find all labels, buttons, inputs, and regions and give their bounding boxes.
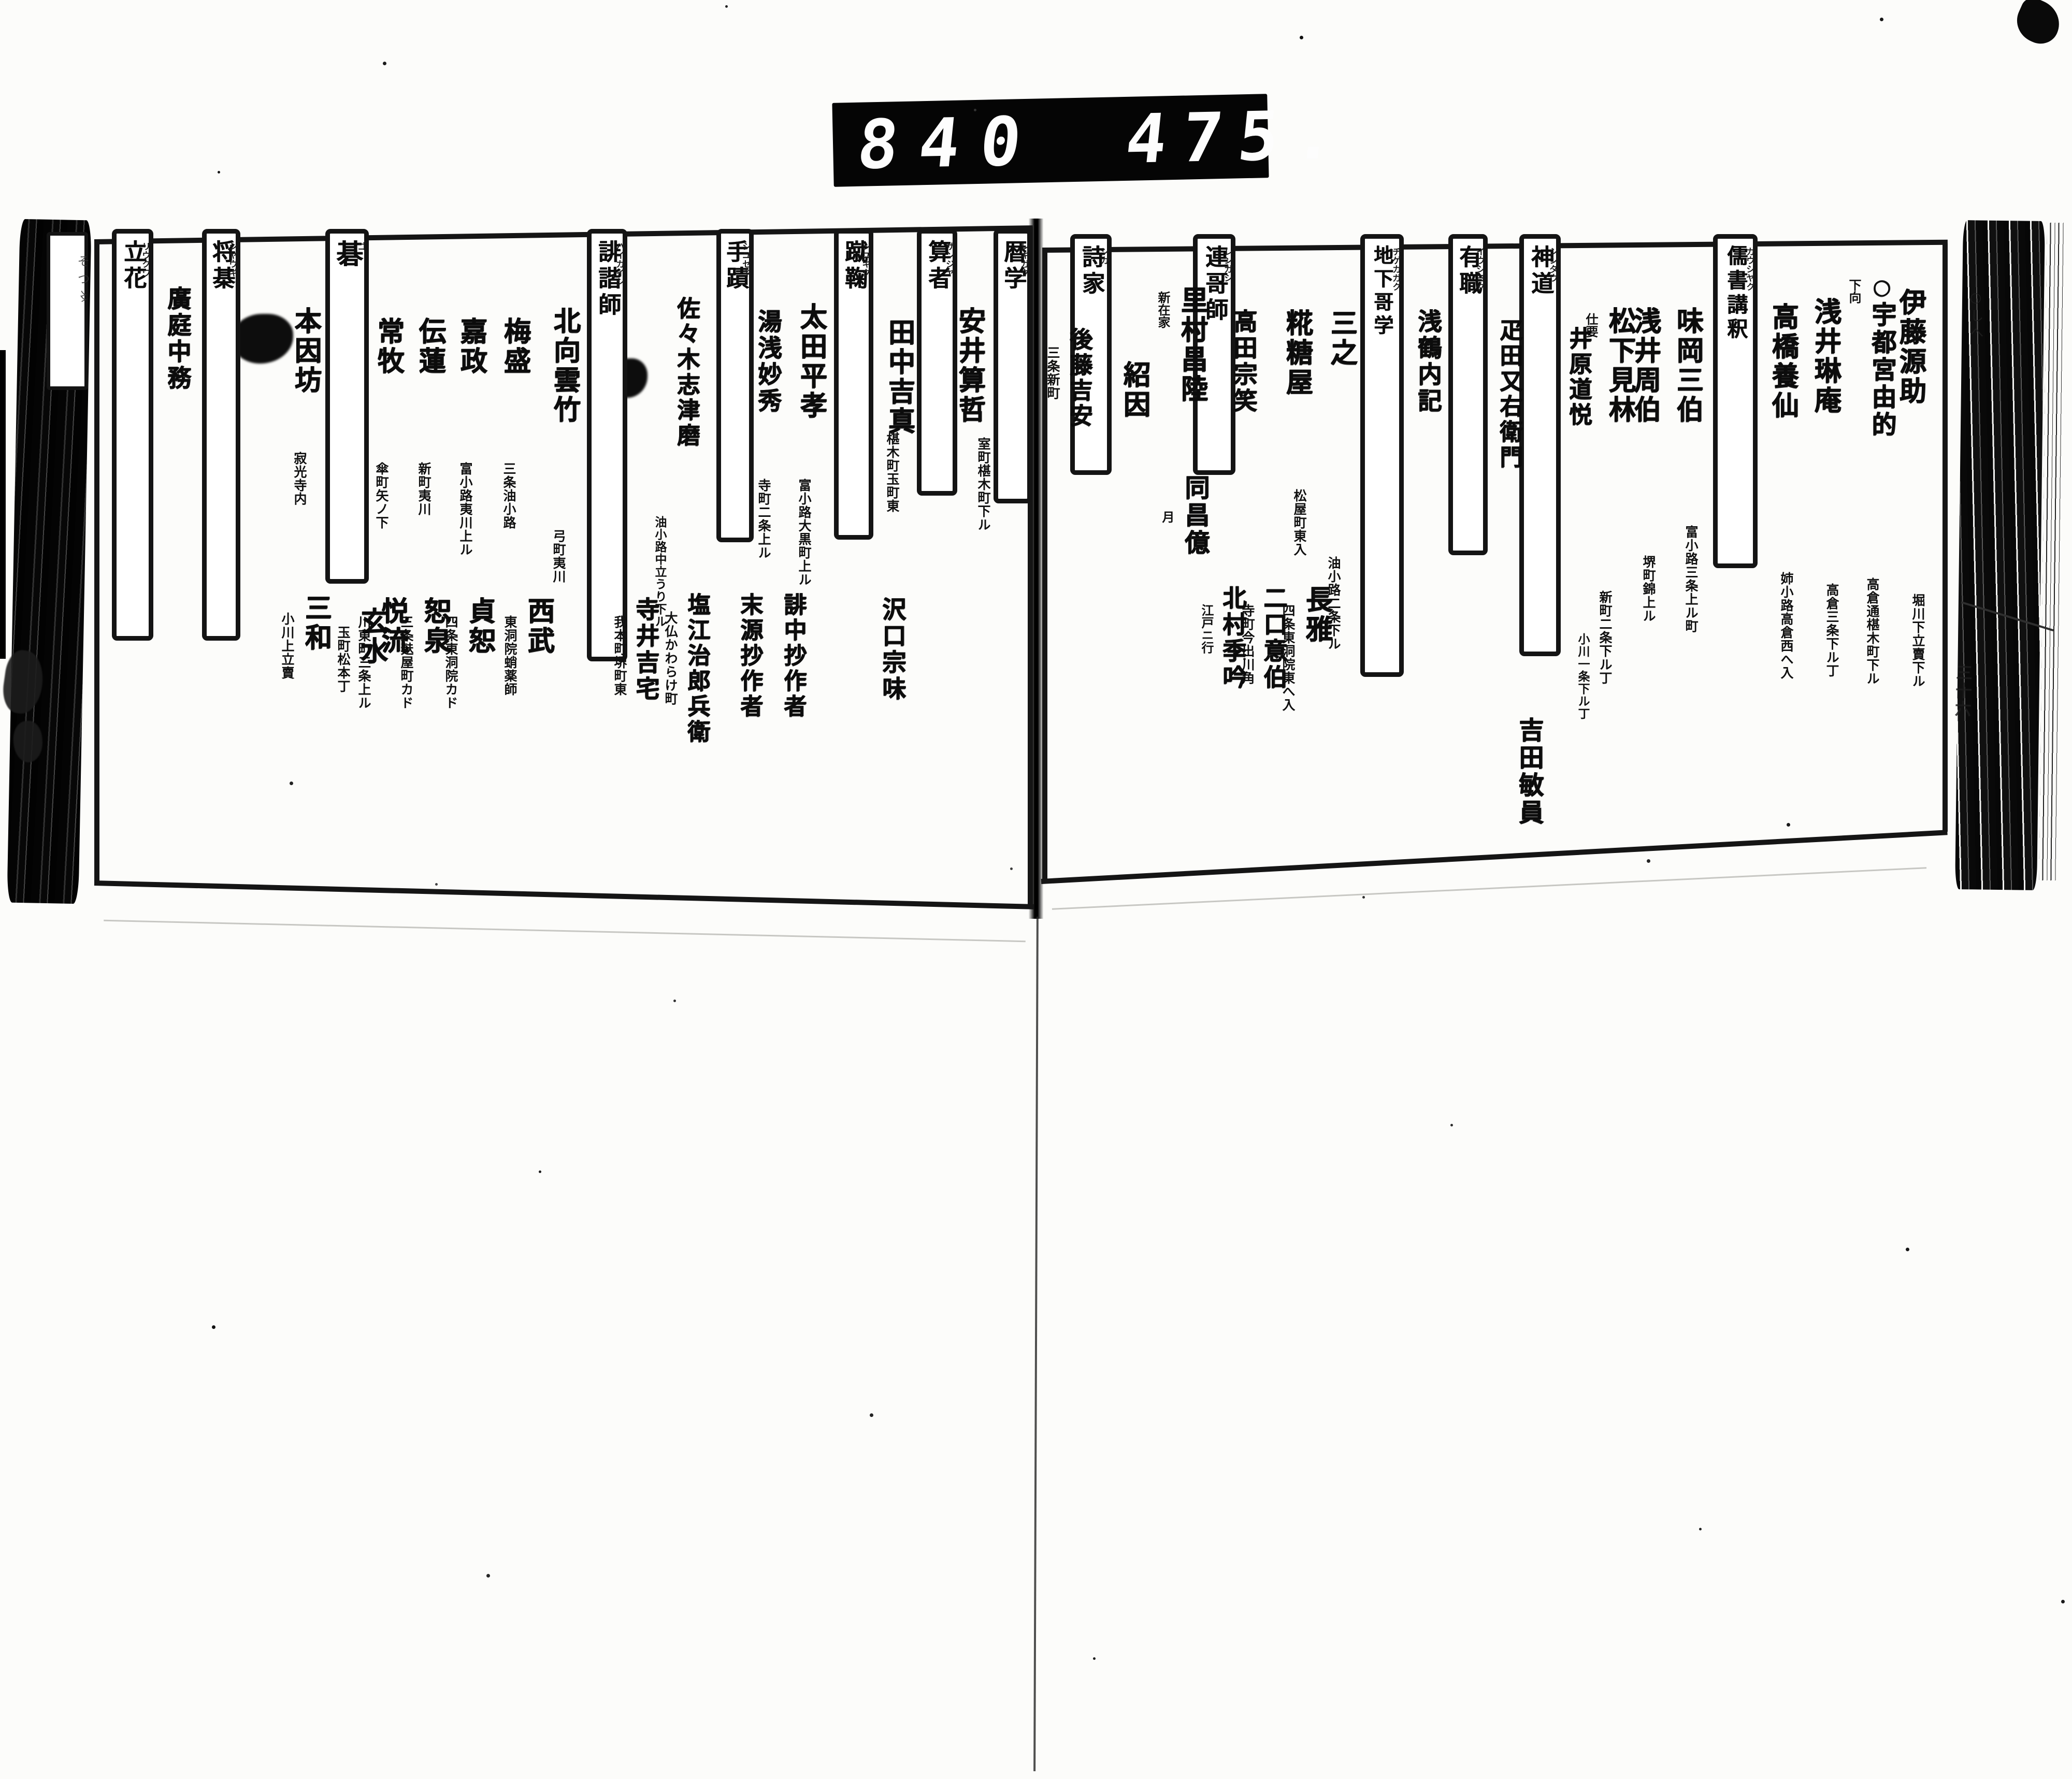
entry-bottom: 塩江治郎兵衛 大仏かわらけ町 [661,592,713,745]
entry-address: 高倉三条下ル丁 [1822,583,1841,677]
entry-name: 高橋養仙 [1763,302,1802,421]
tab-shogi: 将棊 シヤウギ [202,229,240,641]
left-margin-scribble: そつ〻 [74,255,92,308]
entry-name: 安井算哲 [950,307,989,425]
entry-bottom: 三和 小川上立賣 [278,594,335,679]
entry-name: 浅鶴内記 [1411,309,1445,414]
tab-furigana: レンガシ [1222,247,1231,282]
entry-name: 紹因 [1115,360,1154,420]
entry-bottom: 北村季吟 江戸ニ行 [1198,585,1250,691]
counter-left-digits: 840 [854,102,1045,184]
entry-name: 太田平孝 [792,302,830,421]
entry-name: 浅井琳庵 [1806,297,1845,415]
entry-address: 弓町夷川 [549,529,568,583]
tab-furigana: シユセキ [741,242,750,277]
tab-yusoku: 有職 イウシヨク [1448,234,1488,555]
left-frame-bottom [94,880,1034,909]
entry-name: ○宇都宮由的 下向 [1845,274,1900,439]
entry-address: 富小路三条上ル町 [1681,525,1700,633]
entry-name: 佐々木志津磨 [669,296,702,449]
entry-address: 姉小路高倉西へ入 [1777,572,1795,679]
entry-address: 新町夷川 [414,462,433,516]
entry-bottom: 同昌億 月 [1158,474,1213,557]
entry-note: 月 [1158,511,1176,557]
counter-right-digits: 475. [1122,95,1354,179]
tab-furigana: イウシヨク [1475,247,1484,291]
tab-shuseki: 手蹟 シユセキ [716,229,754,542]
entry-bottom: 西武 東洞院蛸薬師 [500,597,558,696]
tab-jusho-koshaku: 儒書講釈 カウシヤク [1713,234,1758,568]
tab-furigana: ゴ [356,242,365,251]
entry-name-bottom: 誹中抄作者 [776,592,809,719]
entry-name-bottom: 沢口宗味 [875,597,910,702]
entry-name: 湯浅妙秀 [751,309,785,414]
tab-furigana: リウクワ [140,242,149,277]
tab-furigana: カウシヤク [1745,247,1753,291]
entry-name: 後藤吉安 三条新町 [1043,327,1095,429]
tab-furigana: サンジヤ [944,242,953,277]
entry-name: 梅盛 [495,317,534,376]
entry-name: 糀糖屋 [1277,309,1316,397]
entry-address: 玉町松本丁 [334,626,352,693]
entry-name: 里村昌陸 新在家 [1154,286,1211,404]
entry-name: 井原道悦 [1561,326,1594,428]
entry-address: 三条新町 [1043,346,1062,429]
entry-address: 東洞院蛸薬師 [500,615,519,696]
right-frame-top [1042,240,1948,253]
tab-shinto: 神道 シンタウ [1519,234,1561,656]
tab-furigana: レキガク [1019,242,1028,277]
entry-address: 室町椹木町下ル [974,437,992,531]
entry-name: 高田宗笑 [1227,309,1261,414]
entry-note: 下向 [1845,279,1863,439]
entry-bottom: 玄水 玉町松本丁 [334,607,391,693]
tab-rikka: 立花 リウクワ [112,229,153,641]
entry-note: 新在家 [1154,291,1172,404]
tab-furigana: ハイカイシ [614,242,623,286]
entry-address: 寺町二条上ル [754,479,773,559]
entry-address: 高倉通椹木町下ル [1863,577,1881,685]
entry-name: 廣庭中務 [161,286,195,392]
tab-kemari: 蹴鞠 シユキク [834,229,873,540]
entry-address: 傘町矢ノ下 [372,462,391,529]
right-frame-right [1942,243,1948,832]
tab-furigana: シユキク [860,242,869,277]
entry-address: 富小路夷川上ル [456,462,474,556]
entry-address: 椹木町玉町東 [883,432,901,513]
entry-address: 三条油小路 [499,462,518,529]
entry-address: 堺町錦上ル [1639,555,1658,623]
entry-name: 三之 [1322,309,1361,368]
film-edge-bar [0,350,6,659]
entry-name: 疋田又右衛門 [1492,318,1525,470]
entry-name: 嘉政 [452,317,491,376]
entry-address: 小川一条下ル丁 [1574,633,1591,720]
scan-corner-artifact [2010,0,2066,50]
tab-furigana: ヂゲカガク [1391,247,1400,291]
entry-note: 江戸ニ行 [1198,604,1216,691]
entry-name: 本因坊 [286,307,325,395]
entry-name-bottom: 吉田敏員 [1510,717,1547,827]
entry-address: 寂光寺内 [290,452,309,505]
entry-name: 田中吉真 [880,318,918,436]
tab-furigana: シンタウ [1548,247,1557,282]
film-frame-counter: 840 475. [832,94,1269,187]
entry-address: 松屋町東入 [1290,489,1308,556]
entry-address: 堀川下立賣下ル [1908,594,1927,688]
entry-address: 我本町堺町東 [610,615,629,702]
tab-furigana: シカ [1099,247,1107,265]
scan-speckles [218,171,220,173]
entry-address: 大仏かわらけ町 [661,611,680,745]
entry-address: 新町二条下ル丁 [1595,590,1614,685]
tab-jige-kagaku: 地下哥学 ヂゲカガク [1360,234,1404,677]
entry-name: 北向雲竹 [545,307,584,425]
entry-circle-mark: ○ [1869,274,1894,301]
entry-name: 味岡三伯 [1668,307,1707,425]
left-frame-left [94,239,99,885]
scanned-microfilm-frame: { "counter": { "left_digits": "840", "ri… [0,0,2072,1779]
ink-smudge-left-page [232,314,293,364]
entry-name: 伝蓮 [410,317,449,376]
entry-address: 富小路大黒町上ル [795,479,813,586]
tab-furigana: シヤウギ [227,242,236,277]
entry-bottom: 寺井吉宅 我本町堺町東 [610,597,663,702]
fore-edge-leaf-number: 三十六 [1950,663,1976,719]
tab-rekigaku: 暦学 レキガク [994,229,1032,503]
tab-go: 碁 ゴ [325,229,369,584]
entry-name: 常牧 [369,317,408,376]
left-page-under-edge [104,920,1026,942]
entry-name-bottom: 末源抄作者 [732,592,766,719]
gutter-crease-extension [1033,917,1039,1771]
right-frame-bottom [1041,830,1948,884]
fore-edge-scribble: ○しへ [1966,290,1985,342]
entry-address: 小川上立賣 [278,612,296,679]
